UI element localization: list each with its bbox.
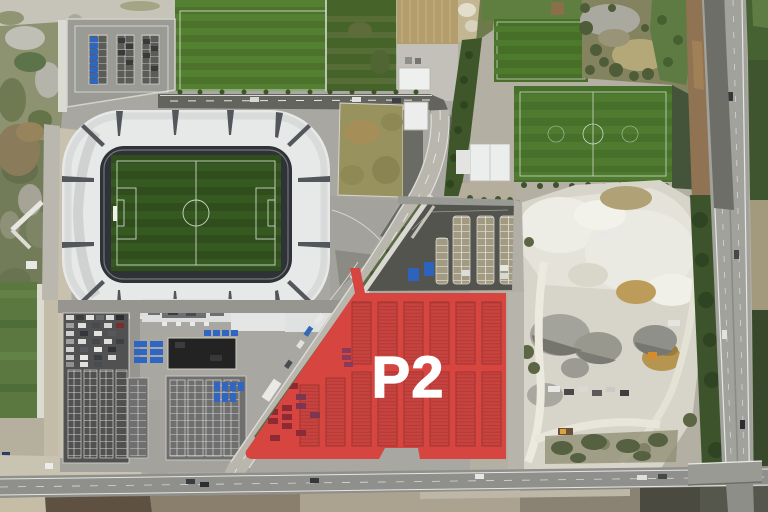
svg-text:P2: P2	[372, 345, 445, 410]
